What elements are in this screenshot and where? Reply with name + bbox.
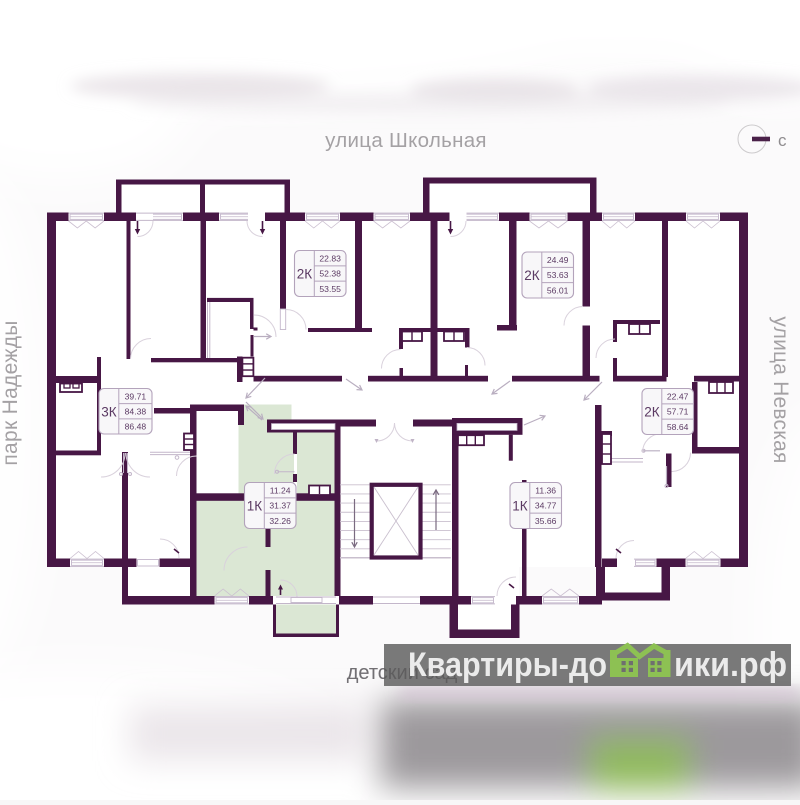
svg-text:84.38: 84.38	[125, 406, 147, 416]
svg-text:53.63: 53.63	[547, 270, 569, 280]
svg-text:52.38: 52.38	[319, 269, 341, 279]
svg-text:22.83: 22.83	[319, 253, 341, 263]
svg-text:57.71: 57.71	[667, 407, 689, 417]
svg-text:2К: 2К	[297, 267, 313, 282]
svg-text:Квартиры-до: Квартиры-до	[408, 646, 607, 684]
svg-text:11.24: 11.24	[270, 485, 291, 495]
svg-text:1К: 1К	[247, 499, 263, 514]
svg-text:22.47: 22.47	[667, 391, 689, 401]
svg-text:1К: 1К	[512, 499, 528, 514]
svg-text:53.55: 53.55	[319, 284, 341, 294]
svg-text:парк Надежды: парк Надежды	[0, 320, 22, 465]
svg-text:32.26: 32.26	[269, 516, 291, 526]
svg-text:35.66: 35.66	[535, 516, 557, 526]
svg-text:улица Школьная: улица Школьная	[325, 129, 487, 152]
svg-text:2К: 2К	[524, 268, 540, 283]
svg-text:ики.рф: ики.рф	[674, 646, 787, 684]
svg-text:с: с	[778, 131, 787, 150]
svg-text:31.37: 31.37	[269, 501, 291, 511]
svg-text:улица Невская: улица Невская	[769, 316, 792, 463]
svg-text:24.49: 24.49	[547, 255, 569, 265]
svg-text:3К: 3К	[101, 404, 117, 419]
svg-text:86.48: 86.48	[125, 422, 147, 432]
svg-text:2К: 2К	[644, 405, 660, 420]
svg-text:56.01: 56.01	[547, 286, 569, 296]
svg-text:39.71: 39.71	[125, 391, 147, 401]
svg-text:34.77: 34.77	[535, 501, 557, 511]
svg-text:11.36: 11.36	[535, 485, 556, 495]
svg-text:58.64: 58.64	[667, 422, 689, 432]
